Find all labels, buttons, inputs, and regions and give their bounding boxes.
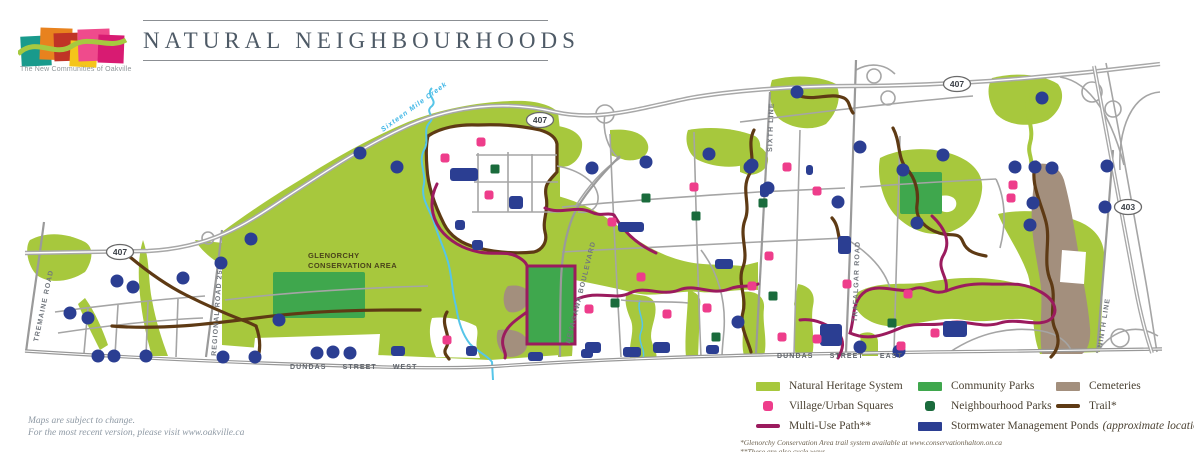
- sixth-line-label: SIXTH LINE: [767, 102, 776, 152]
- stormwater-pond-area: [838, 236, 851, 254]
- neighbourhood-park: [888, 319, 897, 328]
- stormwater-pond: [832, 196, 845, 209]
- village-urban-square: [843, 280, 852, 289]
- village-urban-square: [778, 333, 787, 342]
- stormwater-pond-area: [653, 342, 670, 353]
- legend-label: Neighbourhood Parks: [951, 400, 1052, 412]
- stormwater-pond-area: [466, 346, 477, 356]
- highway-shield-label-407: 407: [533, 115, 547, 125]
- stormwater-pond: [1101, 160, 1114, 173]
- stormwater-pond: [1024, 219, 1037, 232]
- logo-tagline: The New Communities of Oakville: [20, 66, 140, 73]
- note-line-2: For the most recent version, please visi…: [28, 427, 244, 439]
- footnote-cycleways: **These are also cycle ways: [740, 447, 1002, 452]
- village-urban-square: [813, 335, 822, 344]
- stormwater-pond: [82, 312, 95, 325]
- stormwater-pond-area: [623, 347, 641, 357]
- legend-item-multi-use-path: Multi-Use Path**: [756, 416, 924, 436]
- stormwater-pond: [344, 347, 357, 360]
- stormwater-pond: [245, 233, 258, 246]
- neighbourhood-park-swatch: [925, 401, 935, 411]
- legend-column-3: Cemeteries Trail*: [1056, 376, 1192, 416]
- stormwater-pond-area: [391, 346, 405, 356]
- footnote-glenorchy: *Glenorchy Conservation Area trail syste…: [740, 438, 1002, 447]
- stormwater-pond: [640, 156, 653, 169]
- stormwater-pond: [1036, 92, 1049, 105]
- title-block: NATURAL NEIGHBOURHOODS: [143, 20, 548, 61]
- village-urban-square: [1009, 181, 1018, 190]
- stormwater-pond: [791, 86, 804, 99]
- community-park-swatch: [918, 382, 942, 391]
- stormwater-pond: [586, 162, 599, 175]
- village-urban-square: [931, 329, 940, 338]
- legend-item-neighbourhood-parks: Neighbourhood Parks: [918, 396, 1078, 416]
- map-notes: Maps are subject to change. For the most…: [28, 415, 244, 439]
- stormwater-pond: [273, 314, 286, 327]
- community-park: [900, 172, 942, 214]
- village-urban-square: [765, 252, 774, 261]
- stormwater-pond: [854, 341, 867, 354]
- legend-label: Community Parks: [951, 380, 1034, 392]
- legend-item-village-squares: Village/Urban Squares: [756, 396, 924, 416]
- neighbourhood-park: [712, 333, 721, 342]
- stormwater-pond-area: [706, 345, 719, 354]
- stormwater-pond-area: [943, 321, 967, 337]
- glenorchy-label-line1: GLENORCHY: [308, 251, 360, 260]
- village-urban-square: [897, 342, 906, 351]
- neighbourhood-park: [611, 299, 620, 308]
- village-urban-square: [477, 138, 486, 147]
- stormwater-pond: [1027, 197, 1040, 210]
- cemetery-swatch: [1056, 382, 1080, 391]
- stormwater-pond: [1046, 162, 1059, 175]
- village-urban-square: [485, 191, 494, 200]
- stormwater-pond-area: [455, 220, 465, 230]
- neighbourhood-park: [642, 194, 651, 203]
- stormwater-pond: [1009, 161, 1022, 174]
- legend-column-1: Natural Heritage System Village/Urban Sq…: [756, 376, 924, 436]
- dundas-street-west-label: DUNDAS STREET WEST: [290, 364, 417, 371]
- approximate-locations-note: (approximate locations): [1103, 420, 1194, 432]
- village-urban-square: [690, 183, 699, 192]
- legend-item-stormwater-ponds: Stormwater Management Ponds (approximate…: [918, 416, 1078, 436]
- village-square-swatch: [763, 401, 773, 411]
- stormwater-pond: [744, 161, 757, 174]
- stormwater-pond-area: [509, 196, 523, 209]
- stormwater-pond: [92, 350, 105, 363]
- stormwater-pond: [703, 148, 716, 161]
- neighbourhood-park: [491, 165, 500, 174]
- village-urban-square: [637, 273, 646, 282]
- cemetery-hole: [1060, 250, 1086, 284]
- village-urban-square: [443, 336, 452, 345]
- stormwater-pond-area: [528, 352, 543, 361]
- stormwater-pond: [177, 272, 190, 285]
- stormwater-pond: [140, 350, 153, 363]
- stormwater-pond: [854, 141, 867, 154]
- legend-footnotes: *Glenorchy Conservation Area trail syste…: [740, 438, 1002, 452]
- stormwater-pond: [64, 307, 77, 320]
- stormwater-pond: [215, 257, 228, 270]
- stormwater-pond-area: [585, 342, 601, 353]
- glenorchy-label-line2: CONSERVATION AREA: [308, 261, 397, 270]
- village-urban-square: [608, 218, 617, 227]
- stormwater-pond-swatch: [918, 422, 942, 431]
- stormwater-pond-area: [806, 165, 813, 175]
- stormwater-pond: [732, 316, 745, 329]
- legend-column-2: Community Parks Neighbourhood Parks Stor…: [918, 376, 1078, 436]
- village-urban-square: [783, 163, 792, 172]
- trail-swatch: [1056, 404, 1080, 408]
- legend-label: Village/Urban Squares: [789, 400, 893, 412]
- stormwater-pond: [911, 217, 924, 230]
- village-urban-square: [703, 304, 712, 313]
- page: GLENORCHY CONSERVATION AREA Sixteen Mile…: [0, 0, 1194, 452]
- neighbourhood-park: [769, 292, 778, 301]
- neighbourhood-park: [692, 212, 701, 221]
- highway-shield-label-407: 407: [113, 247, 127, 257]
- stormwater-pond: [937, 149, 950, 162]
- legend-label: Cemeteries: [1089, 380, 1141, 392]
- stormwater-pond: [391, 161, 404, 174]
- stormwater-pond-area: [618, 222, 644, 232]
- stormwater-pond: [249, 351, 262, 364]
- stormwater-pond: [108, 350, 121, 363]
- stormwater-pond: [111, 275, 124, 288]
- natural-heritage-swatch: [756, 382, 780, 391]
- legend-label: Trail*: [1089, 400, 1117, 412]
- stormwater-pond-area: [820, 324, 842, 346]
- stormwater-pond-area: [472, 240, 483, 250]
- legend-label: Stormwater Management Ponds: [951, 420, 1099, 432]
- village-urban-square: [441, 154, 450, 163]
- highway-shield-label-403: 403: [1121, 202, 1135, 212]
- village-urban-square: [904, 290, 913, 299]
- stormwater-pond: [217, 351, 230, 364]
- legend-item-community-parks: Community Parks: [918, 376, 1078, 396]
- stormwater-pond-area: [715, 259, 733, 269]
- legend-item-natural-heritage: Natural Heritage System: [756, 376, 924, 396]
- stormwater-pond: [127, 281, 140, 294]
- stormwater-pond: [354, 147, 367, 160]
- dundas-street-east-label: DUNDAS STREET EAST: [777, 353, 903, 360]
- stormwater-pond: [311, 347, 324, 360]
- stormwater-pond: [1099, 201, 1112, 214]
- legend-label: Multi-Use Path**: [789, 420, 871, 432]
- stormwater-pond: [1029, 161, 1042, 174]
- village-urban-square: [585, 305, 594, 314]
- legend-label: Natural Heritage System: [789, 380, 903, 392]
- village-urban-square: [1007, 194, 1016, 203]
- neighbourhood-park: [759, 199, 768, 208]
- stormwater-pond: [762, 182, 775, 195]
- highway-shield-label-407: 407: [950, 79, 964, 89]
- village-urban-square: [748, 282, 757, 291]
- village-urban-square: [813, 187, 822, 196]
- page-title: NATURAL NEIGHBOURHOODS: [143, 28, 548, 54]
- note-line-1: Maps are subject to change.: [28, 415, 244, 427]
- stormwater-pond: [327, 346, 340, 359]
- stormwater-pond: [897, 164, 910, 177]
- stormwater-pond-area: [450, 168, 478, 181]
- legend-item-trail: Trail*: [1056, 396, 1192, 416]
- multi-use-path-swatch: [756, 424, 780, 428]
- legend-item-cemeteries: Cemeteries: [1056, 376, 1192, 396]
- village-urban-square: [663, 310, 672, 319]
